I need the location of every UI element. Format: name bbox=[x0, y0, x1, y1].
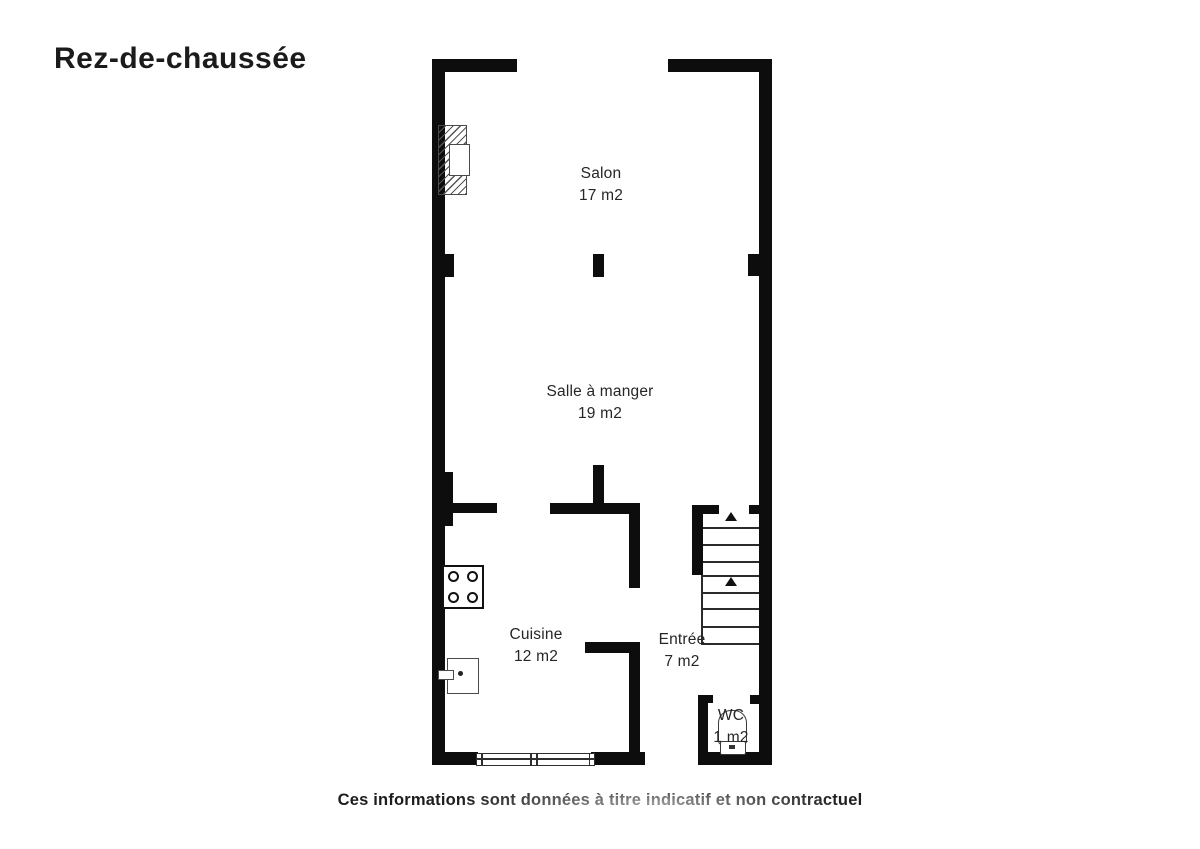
wall-stair-cap bbox=[692, 505, 719, 514]
room-area: 7 m2 bbox=[659, 651, 706, 673]
burner-icon bbox=[448, 592, 459, 603]
burner-icon bbox=[467, 571, 478, 582]
wall-mid-stub-v bbox=[593, 465, 604, 505]
wall-stub-salon-left bbox=[443, 254, 454, 277]
stair-tread bbox=[701, 592, 759, 594]
stairs-up-arrow-icon bbox=[725, 512, 737, 521]
stair-bottom-line bbox=[701, 643, 759, 645]
room-name: Cuisine bbox=[509, 624, 562, 646]
wall-mid-h bbox=[550, 503, 640, 514]
room-label-cuisine: Cuisine 12 m2 bbox=[509, 624, 562, 668]
room-label-entree: Entrée 7 m2 bbox=[659, 629, 706, 673]
wall-cuisine-left-h bbox=[443, 503, 497, 513]
room-name: WC bbox=[713, 705, 748, 727]
floor-plan: Salon 17 m2 Salle à manger 19 m2 Cuisine… bbox=[0, 0, 1200, 849]
room-area: 19 m2 bbox=[546, 403, 653, 425]
wall-cuisine-right-lower bbox=[629, 642, 640, 765]
window-tick bbox=[530, 754, 532, 765]
stair-tread bbox=[701, 626, 759, 628]
wall-bottom-left bbox=[432, 752, 478, 765]
disclaimer-text: Ces informations sont données à titre in… bbox=[0, 791, 1200, 810]
room-name: Salon bbox=[579, 163, 623, 185]
wall-wc-right-stub bbox=[750, 695, 759, 704]
stairs-up-arrow-icon bbox=[725, 577, 737, 586]
burner-icon bbox=[467, 592, 478, 603]
wall-top-left bbox=[432, 59, 517, 72]
room-label-wc: WC 1 m2 bbox=[713, 705, 748, 749]
stair-tread bbox=[701, 608, 759, 610]
stair-tread bbox=[703, 561, 759, 563]
window-icon bbox=[476, 753, 595, 766]
stair-tread bbox=[703, 544, 759, 546]
room-label-salle-a-manger: Salle à manger 19 m2 bbox=[546, 381, 653, 425]
wall-wc-cap bbox=[698, 695, 713, 703]
wall-stub-salon-right bbox=[748, 254, 759, 276]
wall-cuisine-right-upper bbox=[629, 514, 640, 588]
room-area: 12 m2 bbox=[509, 646, 562, 668]
room-name: Salle à manger bbox=[546, 381, 653, 403]
window-tick bbox=[536, 754, 538, 765]
appliance-knob bbox=[458, 671, 463, 676]
wall-top-right bbox=[668, 59, 772, 72]
room-label-salon: Salon 17 m2 bbox=[579, 163, 623, 207]
fireplace-firebox bbox=[449, 144, 470, 176]
wall-stub-salon-mid bbox=[593, 254, 604, 277]
room-area: 1 m2 bbox=[713, 727, 748, 749]
wall-stair-right-stub bbox=[749, 505, 759, 514]
wall-right bbox=[759, 59, 772, 765]
stair-tread bbox=[703, 527, 759, 529]
wall-pier-left bbox=[445, 472, 453, 526]
stove-icon bbox=[442, 565, 484, 609]
wall-stair-left bbox=[692, 505, 703, 575]
room-name: Entrée bbox=[659, 629, 706, 651]
wall-wc-left bbox=[698, 695, 708, 755]
room-area: 17 m2 bbox=[579, 185, 623, 207]
appliance-handle bbox=[438, 670, 454, 680]
burner-icon bbox=[448, 571, 459, 582]
window-tick bbox=[481, 754, 483, 765]
window-tick bbox=[589, 754, 591, 765]
